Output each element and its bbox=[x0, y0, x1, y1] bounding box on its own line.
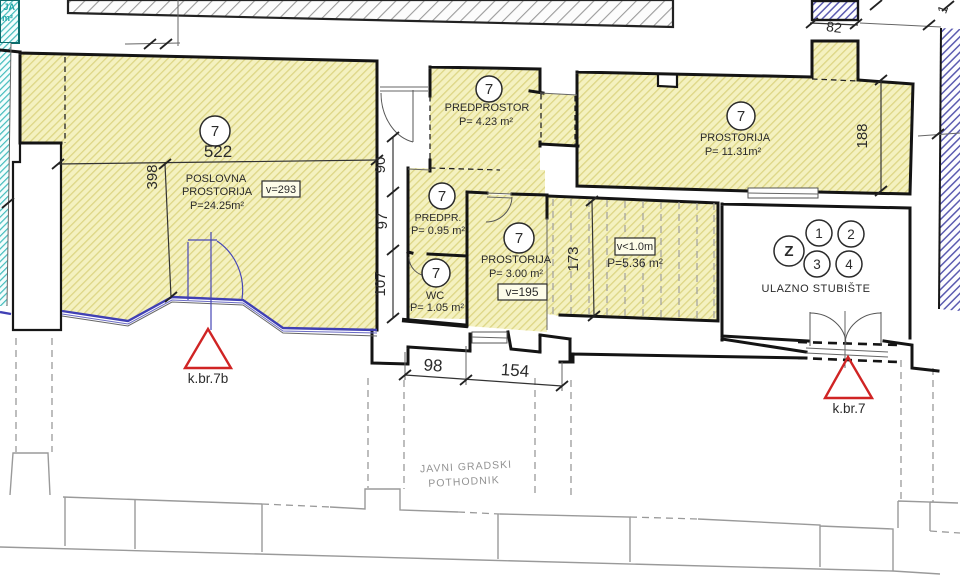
dim-154: 154 bbox=[500, 360, 530, 381]
marker-label-7: k.br.7 bbox=[832, 401, 865, 416]
pothodnik-outer-edge bbox=[0, 547, 940, 574]
stubiste-z: Z bbox=[784, 243, 793, 260]
prostorija3-number: 7 bbox=[515, 230, 523, 247]
poslovna-name-1: POSLOVNA bbox=[186, 173, 247, 185]
stubiste-1: 1 bbox=[815, 226, 823, 241]
poslovna-area: P=24.25m² bbox=[190, 200, 244, 212]
marker-label-7b: k.br.7b bbox=[188, 371, 229, 386]
left-pillar bbox=[13, 143, 61, 330]
under-stairs-vbox: v<1.0m bbox=[617, 241, 653, 253]
pothodnik-left-footing bbox=[10, 453, 50, 495]
wc-number: 7 bbox=[432, 265, 440, 282]
stubiste-2: 2 bbox=[847, 227, 855, 242]
wc-area: P= 1.05 m² bbox=[410, 302, 464, 314]
prostorija11-area: P= 11.31m² bbox=[705, 146, 762, 158]
poslovna-name-2: PROSTORIJA bbox=[182, 186, 253, 198]
predprostor-area: P= 4.23 m² bbox=[459, 116, 513, 128]
passage-fill bbox=[540, 93, 577, 145]
marker-triangle-7 bbox=[825, 357, 872, 398]
under-stairs-area: P=5.36 m² bbox=[607, 256, 663, 270]
stubiste-4: 4 bbox=[845, 257, 853, 272]
passage-label-1: JAVNI GRADSKI bbox=[420, 459, 513, 476]
marker-triangle-7b bbox=[185, 329, 231, 368]
neighbor-building-hatch bbox=[68, 0, 673, 27]
prostorija3-vbox: v=195 bbox=[505, 285, 538, 299]
dim-188: 188 bbox=[854, 123, 871, 148]
stubiste-3: 3 bbox=[813, 257, 821, 272]
dim-82: 82 bbox=[825, 18, 843, 36]
prostorija3-area: P= 3.00 m² bbox=[489, 268, 543, 280]
corner-text-1: JA bbox=[3, 2, 15, 12]
dim-173: 173 bbox=[565, 246, 582, 271]
dim-98: 98 bbox=[423, 355, 443, 375]
dim-97: 97 bbox=[374, 213, 391, 230]
floor-plan-page: JA m² 7 522 POSLOVNA PROSTORIJA P=24.25m… bbox=[0, 0, 960, 576]
right-blue-strip bbox=[939, 28, 960, 311]
predprostor-number: 7 bbox=[485, 81, 493, 98]
pothodnik-outlines bbox=[0, 338, 960, 574]
poslovna-number: 7 bbox=[211, 123, 219, 140]
predprostor-name: PREDPROSTOR bbox=[445, 102, 530, 114]
dim-107: 107 bbox=[372, 271, 389, 296]
stubiste-name: ULAZNO STUBIŠTE bbox=[762, 282, 871, 295]
prostorija11-number: 7 bbox=[737, 108, 745, 125]
pothodnik-walls bbox=[63, 489, 958, 571]
predpr-name: PREDPR. bbox=[415, 212, 462, 224]
prostorija11-name: PROSTORIJA bbox=[700, 132, 771, 144]
dim-522: 522 bbox=[204, 142, 232, 161]
predpr-number: 7 bbox=[438, 188, 446, 205]
pothodnik-dashed-horiz bbox=[262, 504, 960, 533]
poslovna-vbox: v=293 bbox=[266, 184, 296, 196]
pothodnik-piers bbox=[65, 497, 498, 559]
corner-text-2: m² bbox=[2, 13, 13, 23]
wc-name: WC bbox=[426, 290, 444, 302]
predpr-area: P= 0.95 m² bbox=[411, 225, 465, 237]
floor-plan-drawing: JA m² 7 522 POSLOVNA PROSTORIJA P=24.25m… bbox=[0, 0, 960, 576]
pillar-82-blue-hatch bbox=[812, 1, 858, 20]
dim-398: 398 bbox=[144, 164, 161, 189]
passage-label-2: POTHODNIK bbox=[428, 474, 500, 490]
dim-90: 90 bbox=[372, 157, 389, 174]
prostorija3-name: PROSTORIJA bbox=[481, 254, 552, 266]
